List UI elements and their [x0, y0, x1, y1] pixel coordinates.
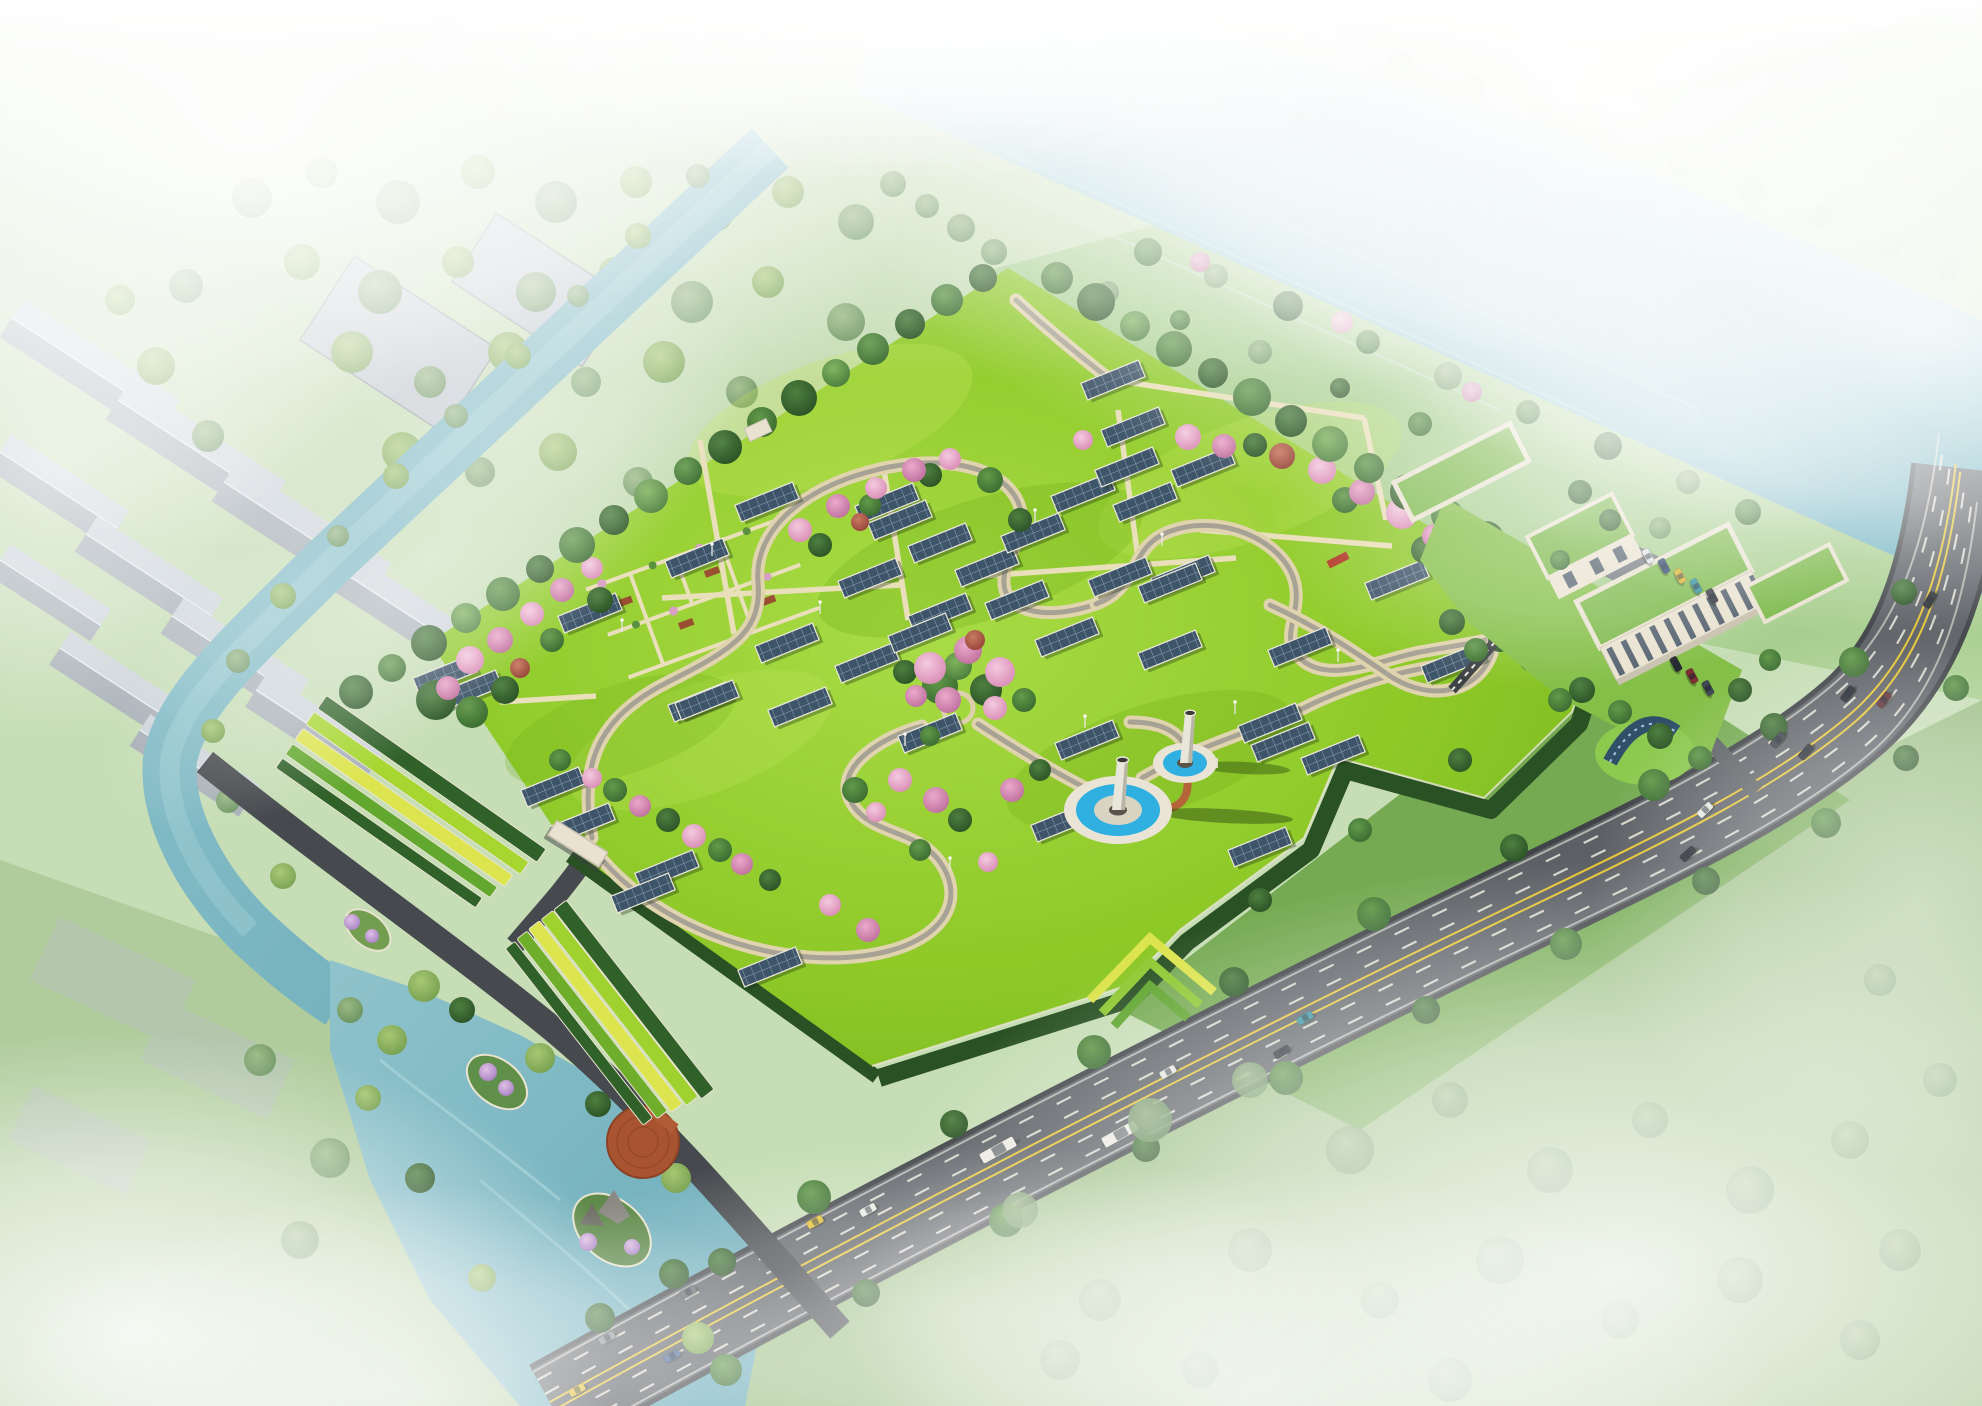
light-pole-lamp — [1083, 714, 1087, 718]
pond-tree — [408, 970, 440, 1002]
vent-tower-opening — [1185, 710, 1196, 716]
pond-tree — [585, 1091, 611, 1117]
park-shrub — [708, 838, 732, 862]
pond-tree — [449, 997, 475, 1023]
park-shrub — [808, 533, 832, 557]
blossom-tree — [826, 494, 850, 518]
roadside-tree — [1548, 688, 1572, 712]
park-shrub — [977, 467, 1003, 493]
blossom-tree — [985, 657, 1015, 687]
blossom-tree — [865, 477, 887, 499]
park-shrub — [920, 726, 940, 746]
lilac-shrub — [365, 929, 379, 943]
canal-bank-tree — [270, 863, 296, 889]
park-shrub — [603, 778, 627, 802]
blossom-tree — [978, 852, 998, 872]
blossom-tree — [1073, 430, 1093, 450]
aerial-rendering: Aerial architectural rendering: green-ro… — [0, 0, 1982, 1406]
light-pole-lamp — [1160, 532, 1164, 536]
blossom-tree — [788, 518, 812, 542]
light-pole-lamp — [1336, 648, 1340, 652]
blossom-tree — [866, 802, 886, 822]
light-pole-lamp — [1033, 508, 1037, 512]
roadside-tree — [1500, 834, 1528, 862]
roadside-tree — [1448, 748, 1472, 772]
park-shrub — [1008, 508, 1032, 532]
light-pole-lamp — [620, 618, 624, 622]
rendering-canvas: Aerial architectural rendering: green-ro… — [0, 0, 1982, 1406]
park-shrub — [909, 839, 931, 861]
light-pole-lamp — [1233, 700, 1237, 704]
east-zone-tree — [1608, 700, 1632, 724]
blossom-tree — [1000, 778, 1024, 802]
blossom-tree — [819, 894, 841, 916]
lilac-shrub — [498, 1080, 514, 1096]
park-shrub — [759, 869, 781, 891]
pond-tree — [337, 997, 363, 1023]
light-pole-lamp — [948, 856, 952, 860]
park-shrub — [1012, 688, 1036, 712]
park-shrub — [549, 749, 571, 771]
blossom-tree — [914, 652, 946, 684]
blossom-tree — [851, 513, 869, 531]
park-shrub — [656, 808, 680, 832]
park-shrub — [1029, 759, 1051, 781]
park-shrub — [842, 777, 868, 803]
blossom-tree — [939, 448, 961, 470]
blossom-tree — [856, 918, 880, 942]
pond-tree — [525, 1043, 555, 1073]
light-pole-lamp — [903, 732, 907, 736]
park-shrub — [893, 660, 917, 684]
lilac-shrub — [479, 1063, 497, 1081]
blossom-tree — [902, 458, 926, 482]
blossom-tree — [965, 630, 985, 650]
blossom-tree — [935, 687, 961, 713]
vent-tower-opening — [1117, 757, 1129, 763]
blossom-tree — [682, 824, 706, 848]
park-shrub — [948, 808, 972, 832]
light-pole-lamp — [818, 600, 822, 604]
roadside-tree — [1348, 818, 1372, 842]
blossom-tree — [888, 768, 912, 792]
blossom-tree — [629, 795, 651, 817]
blossom-tree — [983, 696, 1007, 720]
blossom-tree — [731, 853, 753, 875]
blossom-tree — [905, 685, 927, 707]
lilac-shrub — [344, 914, 360, 930]
blossom-tree — [923, 787, 949, 813]
fog-mist — [1270, 350, 1850, 690]
blossom-tree — [582, 768, 602, 788]
pond-tree — [377, 1025, 407, 1055]
light-pole-lamp — [710, 542, 714, 546]
